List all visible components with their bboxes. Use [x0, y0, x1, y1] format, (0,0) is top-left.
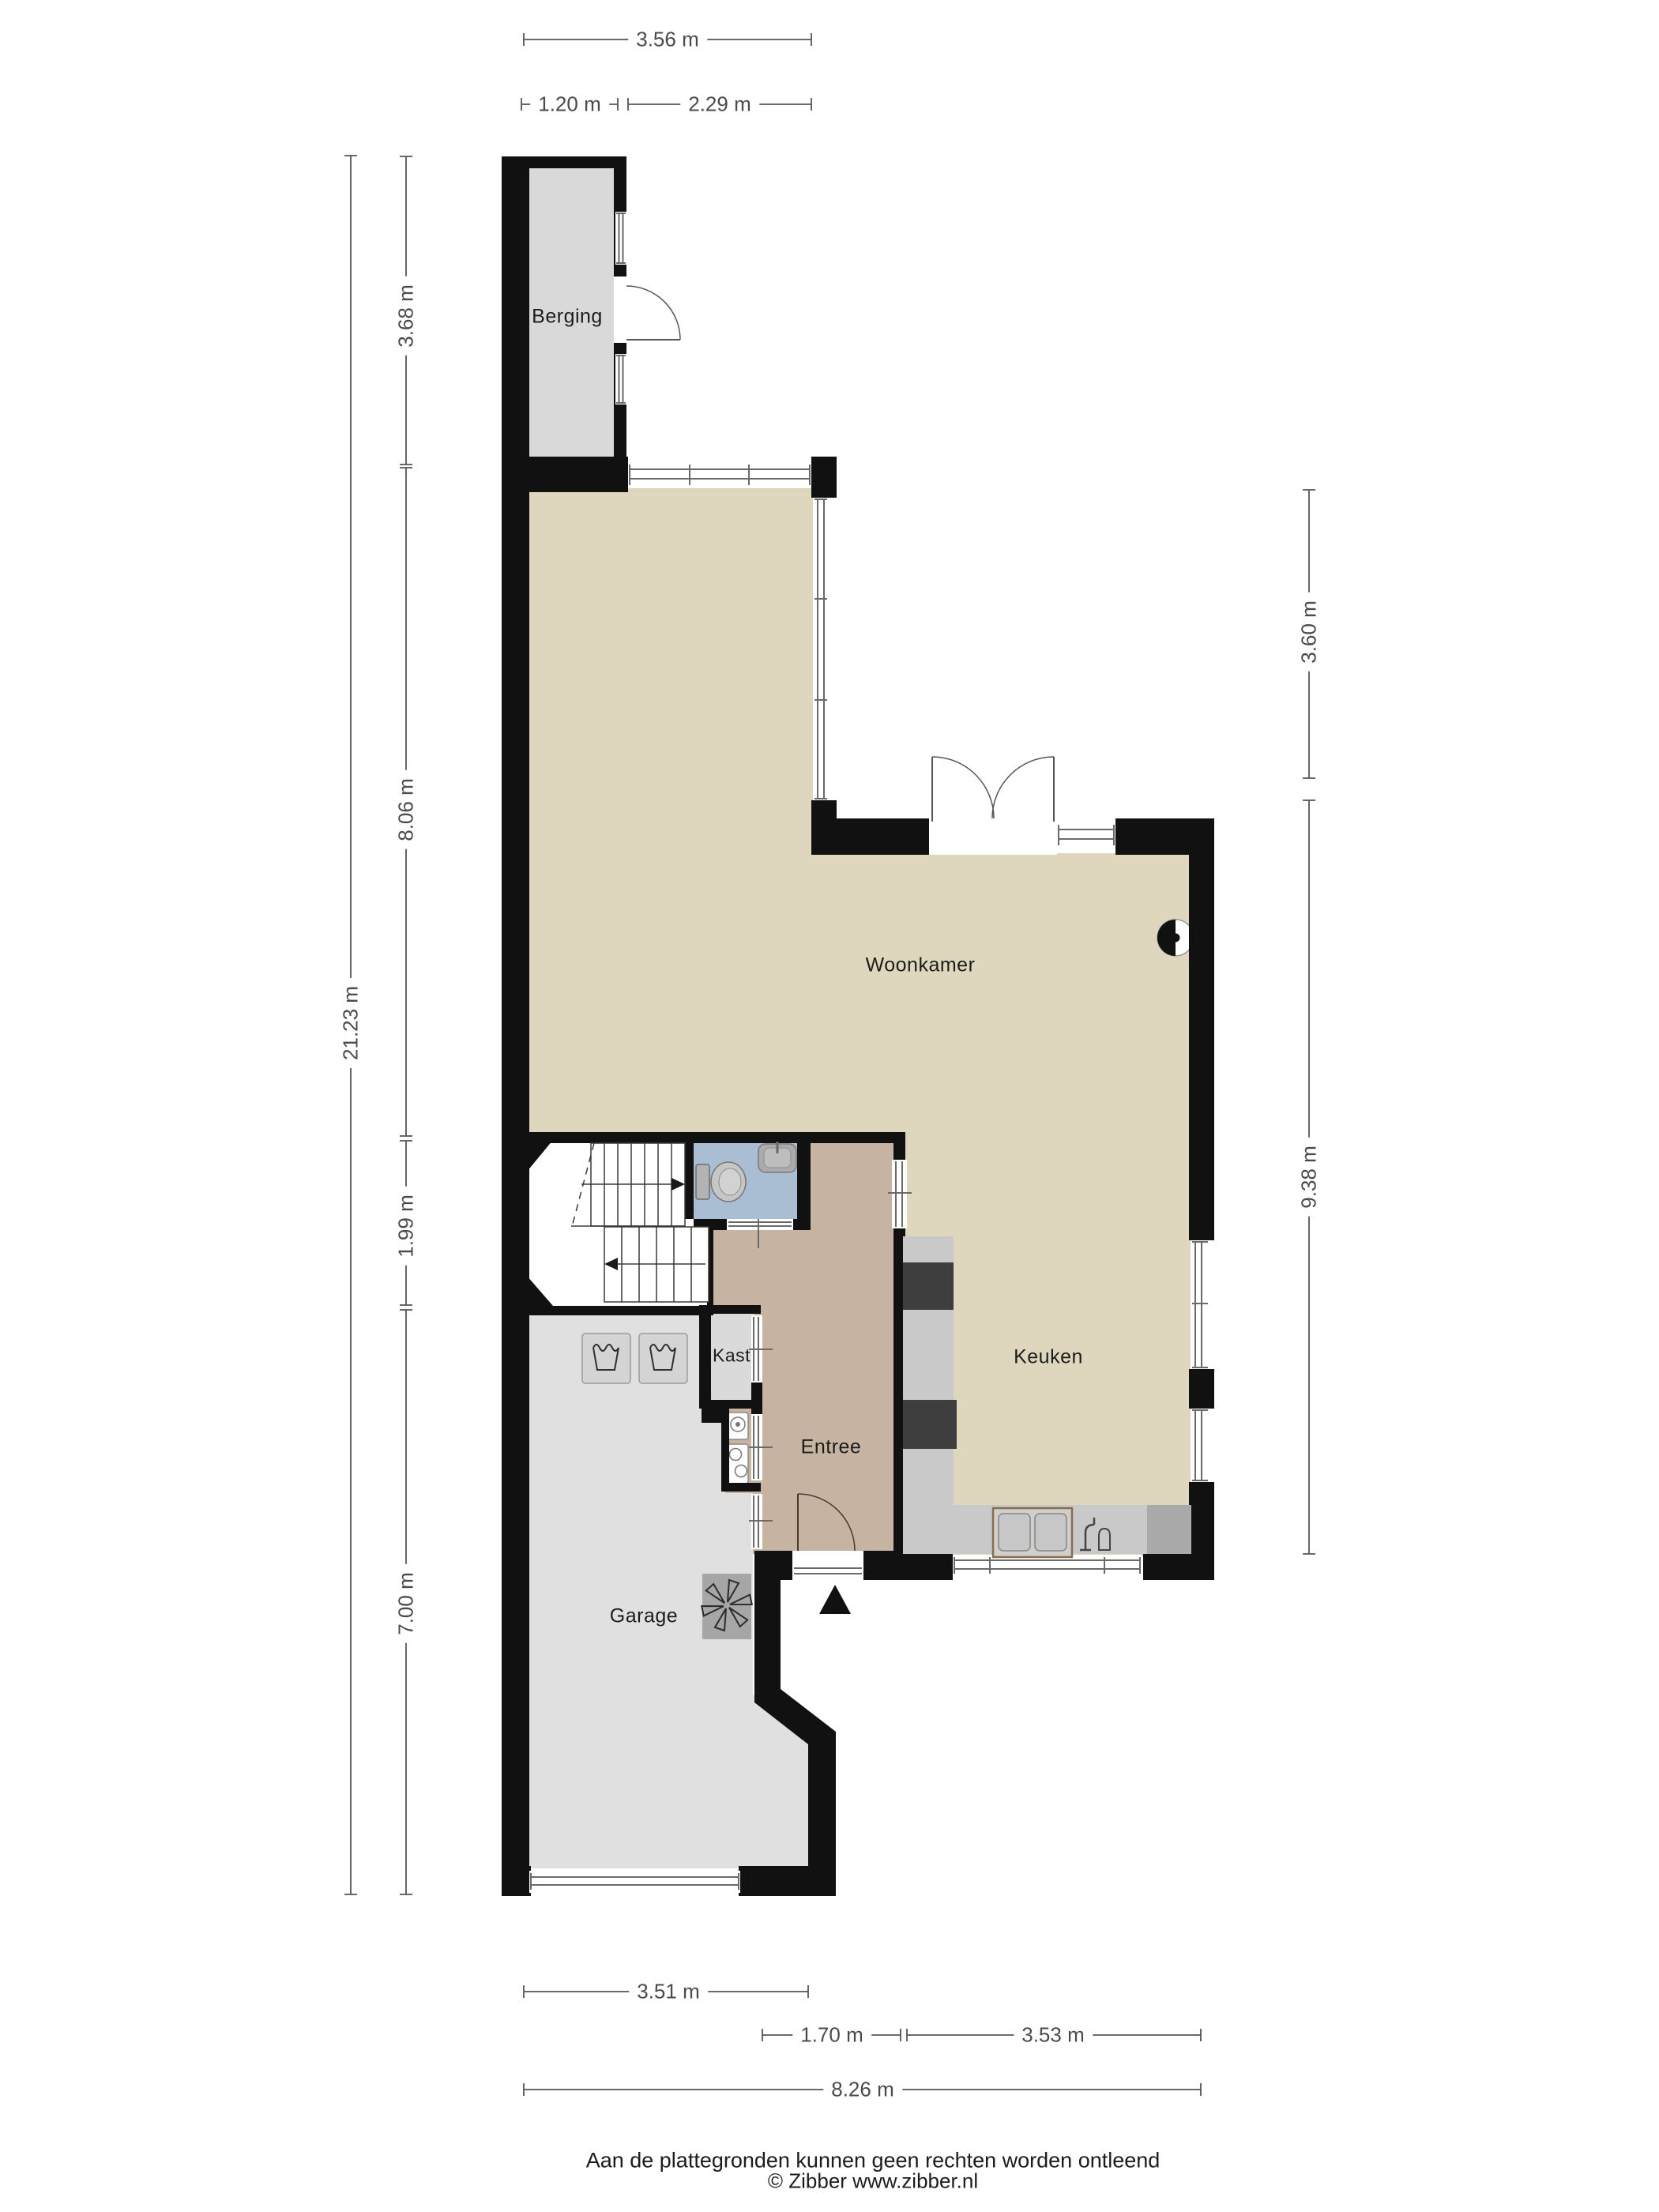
- dim-right-bottom: 9.38 m: [1297, 1138, 1322, 1217]
- wall-meterkast-corner: [702, 1409, 723, 1423]
- room-label-berging: Berging: [532, 306, 603, 329]
- room-label-kast: Kast: [713, 1345, 750, 1367]
- floor-toilet: [694, 1142, 804, 1221]
- wall-garage-bottom-right: [739, 1866, 836, 1896]
- wall-right-solid: [1189, 818, 1214, 1240]
- door-front-opening: [792, 1551, 863, 1580]
- room-label-keuken: Keuken: [1014, 1346, 1083, 1369]
- wall-stairs-right: [685, 1140, 694, 1219]
- wall-toilet-right: [797, 1140, 811, 1230]
- wall-berging-right: [614, 156, 626, 466]
- dim-bottom-garage: 3.51 m: [629, 1980, 708, 2004]
- window-woonkamer-top: [628, 461, 811, 488]
- door-woonkamer-french-opening: [929, 818, 1057, 855]
- wall-right-upper-corner: [811, 800, 837, 855]
- floor-woonkamer-lower: [525, 853, 1193, 1136]
- dim-top-right: 2.29 m: [680, 92, 759, 117]
- wall-berging-top: [502, 156, 626, 168]
- wall-kast-right-jamb: [751, 1381, 762, 1414]
- wall-keuken-entree-top: [893, 1132, 905, 1160]
- room-label-woonkamer: Woonkamer: [866, 954, 976, 977]
- wall-top-corner: [811, 457, 837, 498]
- washing-machine-icon-1: [582, 1334, 630, 1383]
- window-keuken-right-1: [1191, 1240, 1209, 1369]
- kitchen-appliance-top: [903, 1262, 954, 1310]
- window-woonkamer-right: [813, 498, 829, 800]
- window-keuken-front: [953, 1555, 1142, 1578]
- wall-toilet-bottom-left: [694, 1219, 728, 1230]
- stairwell-bevel-top: [527, 1140, 553, 1172]
- wall-woonkamer-north-left: [837, 818, 929, 855]
- wall-front-entree-right: [863, 1551, 895, 1580]
- wall-front-entree-left: [754, 1551, 792, 1580]
- wall-front-keuken-right: [1143, 1551, 1214, 1580]
- wall-right-pier: [1189, 1369, 1214, 1409]
- entrance-arrow-icon: [819, 1585, 851, 1614]
- garage-right-wall: [754, 1551, 836, 1896]
- door-french: [932, 757, 1054, 822]
- wall-garage-bottom-left: [502, 1866, 531, 1896]
- wall-top-left: [502, 457, 628, 492]
- dim-right-top: 3.60 m: [1297, 592, 1322, 671]
- window-garage-front: [529, 1871, 740, 1893]
- window-keuken-right-2: [1191, 1409, 1209, 1482]
- dim-left-total: 21.23 m: [339, 978, 363, 1068]
- footer-copyright: © Zibber www.zibber.nl: [768, 2169, 978, 2194]
- dim-left-garage: 7.00 m: [394, 1564, 419, 1643]
- wall-front-keuken-left: [893, 1551, 953, 1580]
- door-berging: [626, 286, 680, 340]
- dim-bottom-entree: 1.70 m: [792, 2023, 871, 2048]
- washing-machine-icon-2: [639, 1334, 687, 1383]
- kitchen-appliance-front: [1147, 1505, 1191, 1554]
- wall-stairs-right-low: [707, 1219, 713, 1315]
- wall-meterkast-bottom: [721, 1483, 761, 1492]
- dim-top-left: 1.20 m: [530, 92, 609, 117]
- dim-left-hal: 1.99 m: [394, 1187, 419, 1266]
- window-woonkamer-north: [1057, 822, 1115, 852]
- fan-icon: [699, 1574, 754, 1639]
- floorplan-page: Berging Woonkamer Keuken Kast Entree Gar…: [0, 0, 1659, 2212]
- stairwell-floor: [528, 1142, 709, 1307]
- wall-mid: [527, 1132, 905, 1143]
- dim-bottom-total: 8.26 m: [823, 2078, 902, 2102]
- dim-left-berging: 3.68 m: [394, 276, 419, 355]
- kitchen-appliance-bottom: [903, 1400, 957, 1449]
- wall-kast-left: [699, 1305, 711, 1409]
- dim-bottom-keuken: 3.53 m: [1014, 2023, 1093, 2048]
- wall-garage-top: [527, 1306, 711, 1315]
- room-label-entree: Entree: [801, 1436, 862, 1459]
- room-label-garage: Garage: [610, 1605, 678, 1628]
- dim-top-total: 3.56 m: [628, 28, 707, 52]
- wall-left: [502, 156, 529, 1896]
- dim-left-woonkamer: 8.06 m: [394, 770, 419, 849]
- stairwell-bevel-bottom: [527, 1276, 553, 1306]
